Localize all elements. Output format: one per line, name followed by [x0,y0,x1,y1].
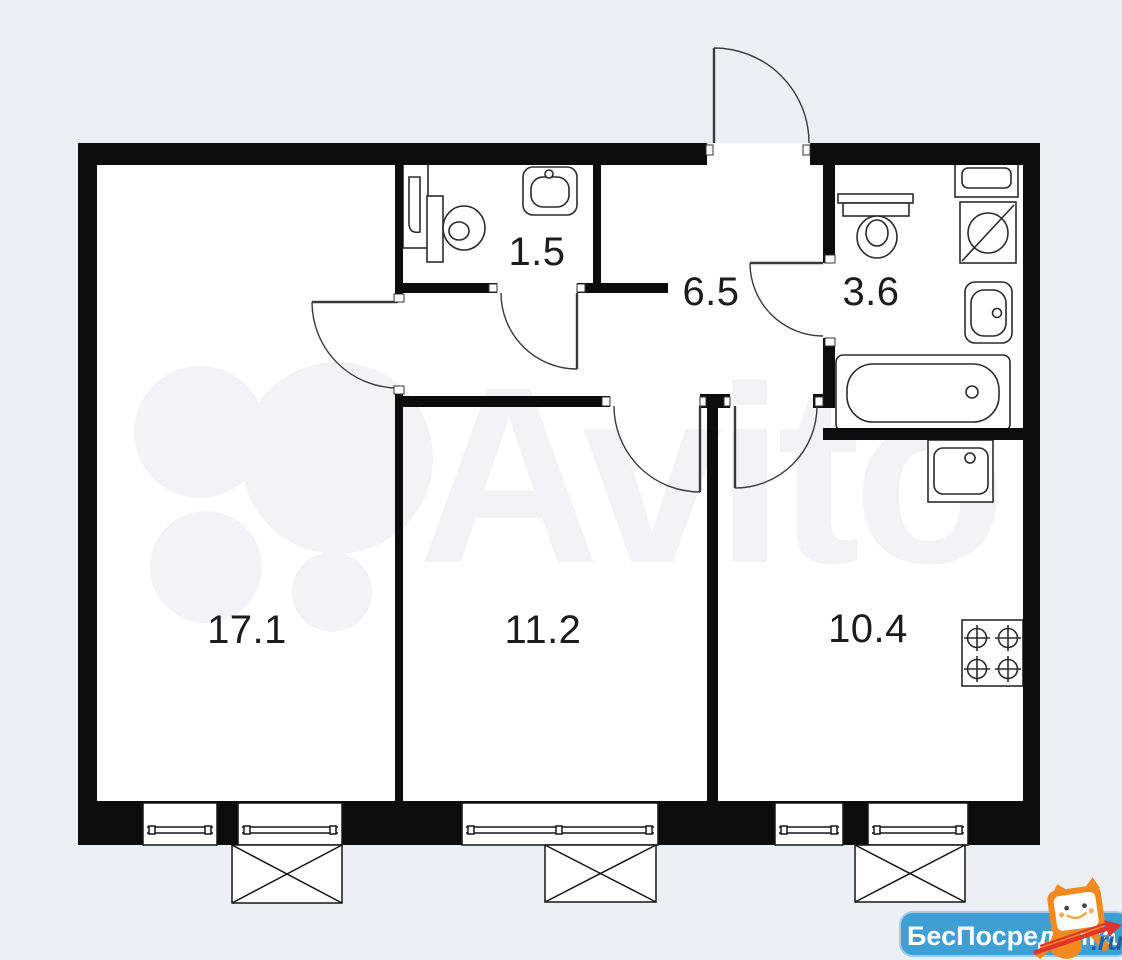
room-label-3-6: 3.6 [842,270,899,314]
balcony-box-kitchen [855,845,965,902]
room-label-17-1: 17.1 [207,608,287,652]
wall-wc-bottom-right [577,283,668,293]
exterior-wall-top-right [810,143,1040,165]
wc-toilet-bowl-inner [449,222,469,240]
wall-room17-upper [395,165,403,302]
bathtub-drain [966,386,978,398]
window-room17-balcony [238,803,342,845]
balcony-box-room11 [545,845,656,902]
exterior-wall-right [1023,143,1040,845]
wall-room11-kitchen [707,408,718,803]
floor-plan-screenshot: Avito [0,0,1122,960]
badge-domain-suffix: .ru [1091,928,1122,956]
wall-bathroom-left-lower [823,338,835,408]
wall-bathroom-bottom [823,428,1023,440]
bath-shelf-inner [962,168,1011,188]
wall-wc-bottom-left [395,283,497,293]
bath-toilet-tank-icon [843,203,909,216]
floor-plan-svg: Avito [0,0,1122,960]
wall-hallway-bottom [403,396,610,407]
bath-toilet-shelf [838,194,913,203]
wc-toilet-tank-icon [427,196,443,262]
window-room11 [462,803,658,845]
wall-room17-lower [395,388,403,803]
entrance-door [714,48,809,143]
window-kitchen-balcony [868,803,968,845]
room-label-1-5: 1.5 [508,230,565,274]
exterior-wall-top-left [78,143,707,165]
window-kitchen-small [775,803,843,845]
bath-toilet-bowl-inner [866,220,888,246]
avito-watermark-dot [150,511,262,623]
bath-sink-faucet [993,309,1002,318]
exterior-wall-left [78,143,97,845]
room-label-11-2: 11.2 [505,608,582,652]
wc-panel-icon [403,163,428,248]
room-label-6-5: 6.5 [682,270,739,314]
kitchen-sink-bowl [934,448,988,494]
stove-icon [962,620,1023,686]
avito-watermark-dot [292,552,372,632]
balcony-box-room17 [232,845,342,903]
wall-wc-right [593,160,601,293]
wc-sink-faucet [545,170,553,178]
wall-bathroom-left-upper [823,158,835,263]
wc-sink-bowl [531,177,569,207]
room-label-10-4: 10.4 [828,607,908,651]
kitchen-sink-faucet [965,453,975,463]
window-room17-small [143,803,217,845]
